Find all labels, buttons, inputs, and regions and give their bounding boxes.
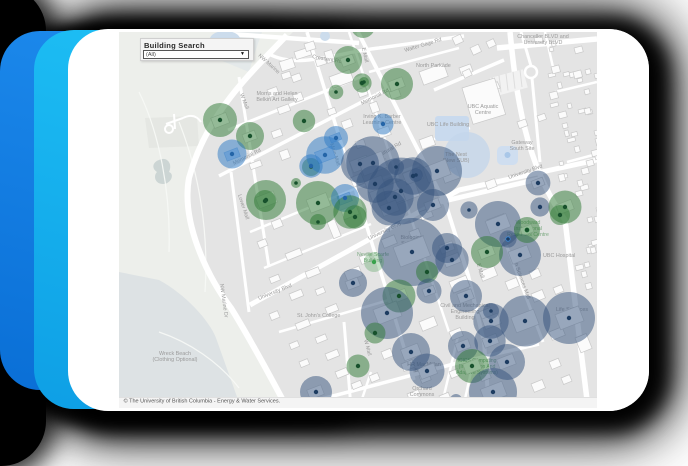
svg-text:Centre: Centre (475, 110, 491, 116)
svg-text:North Parkade: North Parkade (416, 63, 451, 69)
svg-text:St. John’s College: St. John’s College (297, 313, 340, 319)
svg-text:UBC Life Building: UBC Life Building (427, 122, 469, 128)
svg-text:UBC Hospital: UBC Hospital (543, 253, 575, 259)
svg-text:University BLVD: University BLVD (524, 40, 563, 46)
svg-text:South Site: South Site (510, 146, 535, 152)
svg-text:(Clothing Optional): (Clothing Optional) (153, 357, 198, 363)
svg-text:Belkin Art Gallery: Belkin Art Gallery (256, 97, 298, 103)
svg-text:Building: Building (455, 315, 474, 321)
